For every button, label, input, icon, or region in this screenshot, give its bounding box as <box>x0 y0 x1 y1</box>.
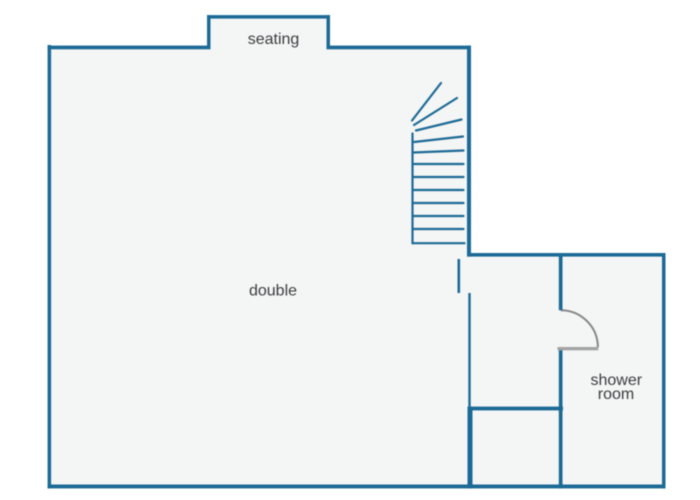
svg-text:seating: seating <box>248 31 300 48</box>
svg-text:room: room <box>598 386 634 403</box>
svg-text:double: double <box>249 283 297 300</box>
